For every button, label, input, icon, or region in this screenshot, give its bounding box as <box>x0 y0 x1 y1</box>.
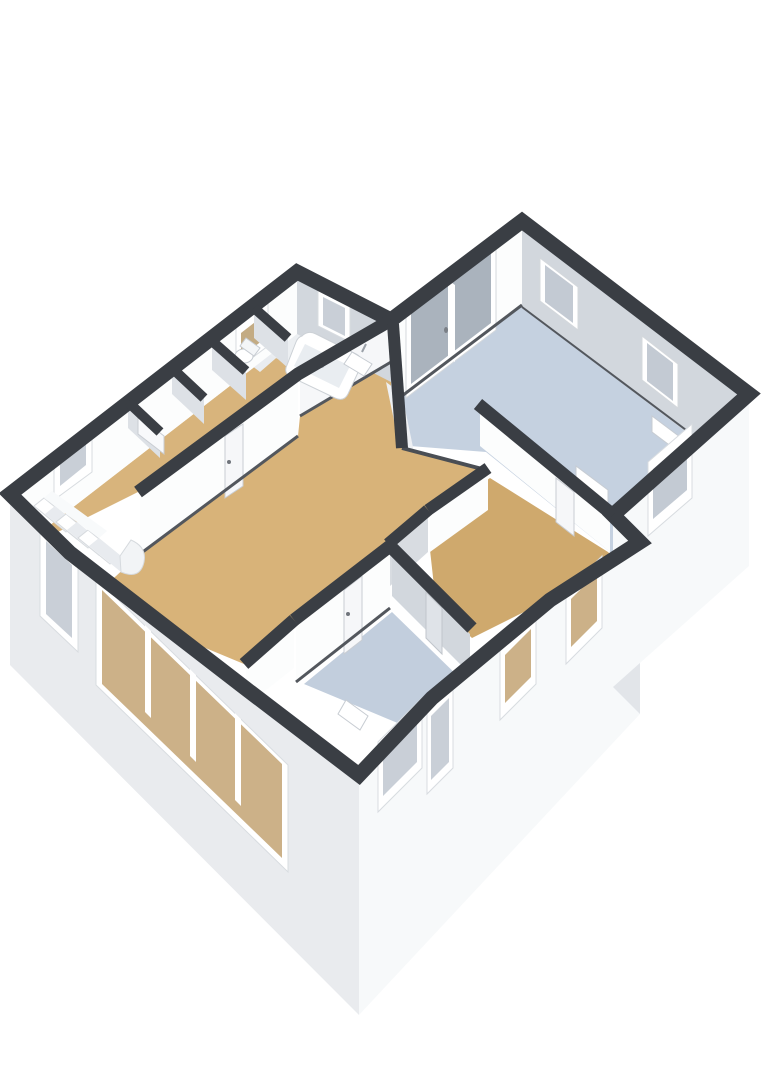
patio-door-mullion <box>448 280 455 362</box>
floorplan-3d-render <box>0 0 764 1080</box>
door-handle-hall <box>227 460 231 464</box>
door-handle-blue-nw <box>346 612 350 616</box>
glasswall-mullion-3 <box>235 713 241 806</box>
patio-door-handle <box>444 327 448 333</box>
glasswall-mullion-2 <box>190 669 196 762</box>
floorplan-viewport[interactable] <box>0 0 764 1080</box>
glasswall-mullion-1 <box>145 625 151 718</box>
